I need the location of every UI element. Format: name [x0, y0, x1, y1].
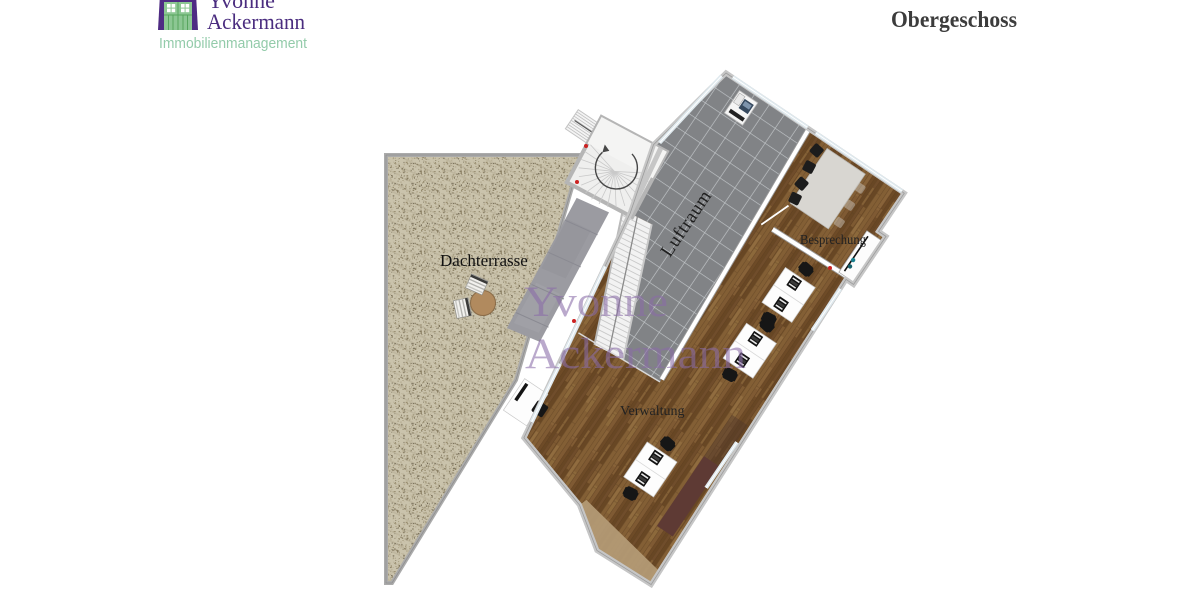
svg-text:Obergeschoss: Obergeschoss — [891, 7, 1017, 33]
svg-text:Ackermann: Ackermann — [207, 9, 305, 34]
svg-text:Besprechung: Besprechung — [800, 233, 866, 248]
svg-text:Yvonne: Yvonne — [524, 279, 668, 326]
svg-text:Immobilienmanagement: Immobilienmanagement — [159, 35, 308, 52]
svg-text:Ackermann: Ackermann — [525, 331, 746, 378]
svg-text:Verwaltung: Verwaltung — [620, 404, 685, 419]
svg-text:Dachterrasse: Dachterrasse — [440, 251, 528, 270]
